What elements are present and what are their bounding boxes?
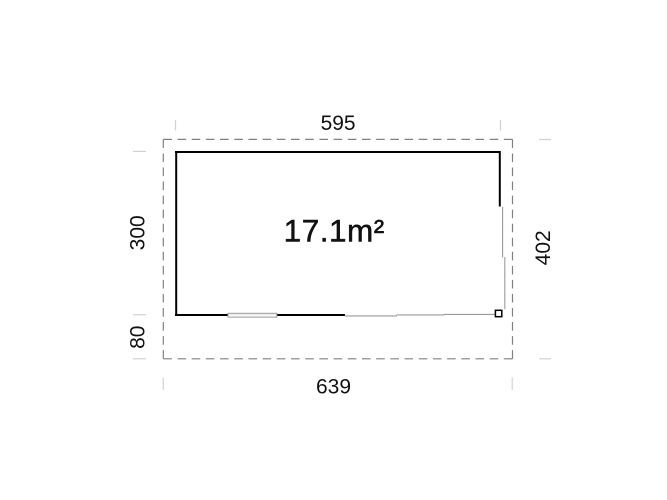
svg-text:595: 595 <box>321 112 356 135</box>
svg-text:17.1m²: 17.1m² <box>284 212 385 248</box>
svg-text:402: 402 <box>532 230 555 265</box>
svg-text:80: 80 <box>127 326 150 349</box>
svg-text:639: 639 <box>316 375 351 398</box>
svg-text:300: 300 <box>127 215 150 250</box>
